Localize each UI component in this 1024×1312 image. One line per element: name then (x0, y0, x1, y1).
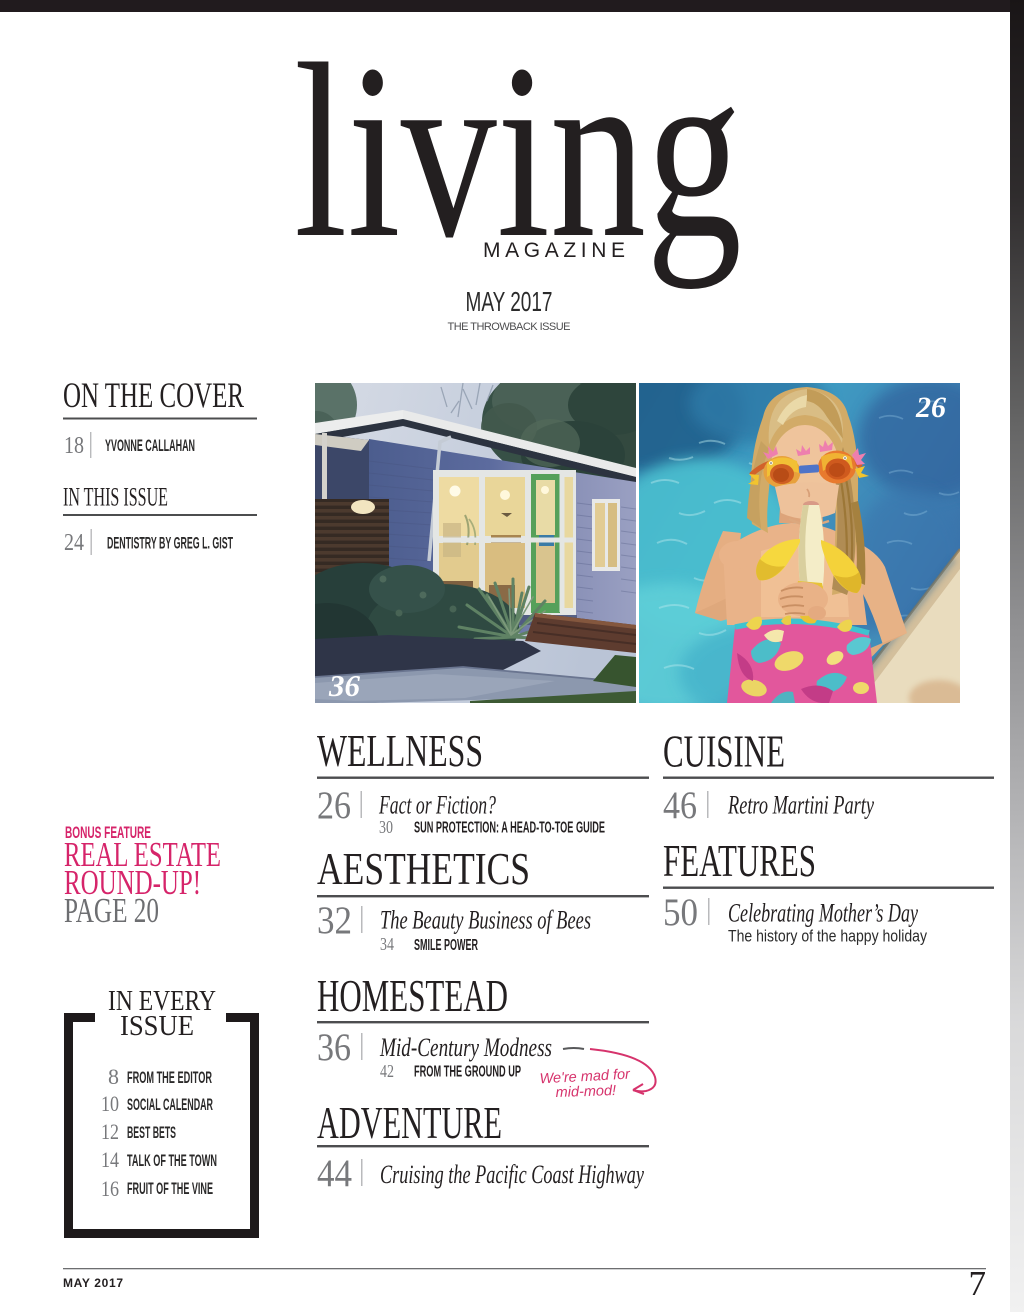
svg-text:14: 14 (101, 1147, 119, 1172)
svg-text:8: 8 (108, 1064, 119, 1089)
svg-text:SMILE POWER: SMILE POWER (414, 937, 478, 954)
svg-text:MAGAZINE: MAGAZINE (483, 239, 625, 262)
svg-text:32: 32 (317, 898, 352, 942)
svg-text:44: 44 (317, 1151, 352, 1195)
svg-text:10: 10 (101, 1091, 119, 1116)
svg-text:Cruising the Pacific Coast Hig: Cruising the Pacific Coast Highway (380, 1160, 644, 1189)
svg-text:ADVENTURE: ADVENTURE (317, 1097, 502, 1148)
svg-text:The history of the happy holid: The history of the happy holiday (728, 928, 928, 946)
svg-text:TALK OF THE TOWN: TALK OF THE TOWN (127, 1152, 217, 1170)
svg-text:SOCIAL CALENDAR: SOCIAL CALENDAR (127, 1096, 213, 1114)
svg-text:24: 24 (64, 529, 84, 556)
svg-text:42: 42 (380, 1061, 394, 1081)
svg-text:26: 26 (915, 391, 946, 424)
svg-text:MAY 2017: MAY 2017 (63, 1276, 123, 1290)
svg-text:18: 18 (64, 432, 84, 459)
svg-text:PAGE 20: PAGE 20 (64, 892, 159, 930)
svg-text:16: 16 (101, 1176, 119, 1201)
svg-text:46: 46 (663, 783, 697, 827)
svg-text:Fact or Fiction?: Fact or Fiction? (378, 791, 496, 820)
svg-text:HOMESTEAD: HOMESTEAD (317, 970, 508, 1021)
svg-text:DENTISTRY BY GREG L. GIST: DENTISTRY BY GREG L. GIST (107, 535, 233, 553)
svg-text:Retro Martini Party: Retro Martini Party (727, 791, 874, 820)
svg-text:Mid-Century Modness: Mid-Century Modness (379, 1033, 552, 1062)
svg-text:FEATURES: FEATURES (663, 836, 816, 886)
svg-text:ON THE COVER: ON THE COVER (63, 375, 244, 415)
svg-text:SUN PROTECTION: A HEAD-TO-TOE: SUN PROTECTION: A HEAD-TO-TOE GUIDE (414, 820, 605, 837)
svg-text:CUISINE: CUISINE (663, 726, 785, 777)
svg-text:mid-mod!: mid-mod! (555, 1083, 616, 1101)
svg-text:ISSUE: ISSUE (120, 1011, 194, 1042)
svg-text:BEST BETS: BEST BETS (127, 1124, 176, 1142)
svg-text:36: 36 (328, 668, 361, 703)
svg-text:MAY 2017: MAY 2017 (466, 286, 553, 317)
svg-text:AESTHETICS: AESTHETICS (317, 844, 530, 894)
svg-text:YVONNE CALLAHAN: YVONNE CALLAHAN (105, 437, 195, 455)
svg-text:36: 36 (317, 1025, 351, 1069)
svg-text:Celebrating Mother’s Day: Celebrating Mother’s Day (728, 899, 918, 928)
svg-text:FROM THE EDITOR: FROM THE EDITOR (127, 1069, 212, 1087)
svg-text:IN THIS ISSUE: IN THIS ISSUE (63, 482, 168, 512)
svg-text:THE THROWBACK ISSUE: THE THROWBACK ISSUE (448, 321, 571, 333)
svg-text:26: 26 (317, 783, 351, 827)
svg-text:50: 50 (663, 890, 698, 934)
svg-text:30: 30 (379, 817, 393, 837)
svg-text:The Beauty Business of Bees: The Beauty Business of Bees (380, 906, 591, 935)
svg-text:FRUIT OF THE VINE: FRUIT OF THE VINE (127, 1180, 213, 1198)
svg-text:FROM THE GROUND UP: FROM THE GROUND UP (414, 1064, 521, 1081)
svg-text:7: 7 (969, 1264, 987, 1303)
svg-text:12: 12 (101, 1119, 119, 1144)
svg-text:34: 34 (380, 934, 394, 954)
svg-text:WELLNESS: WELLNESS (317, 726, 483, 776)
